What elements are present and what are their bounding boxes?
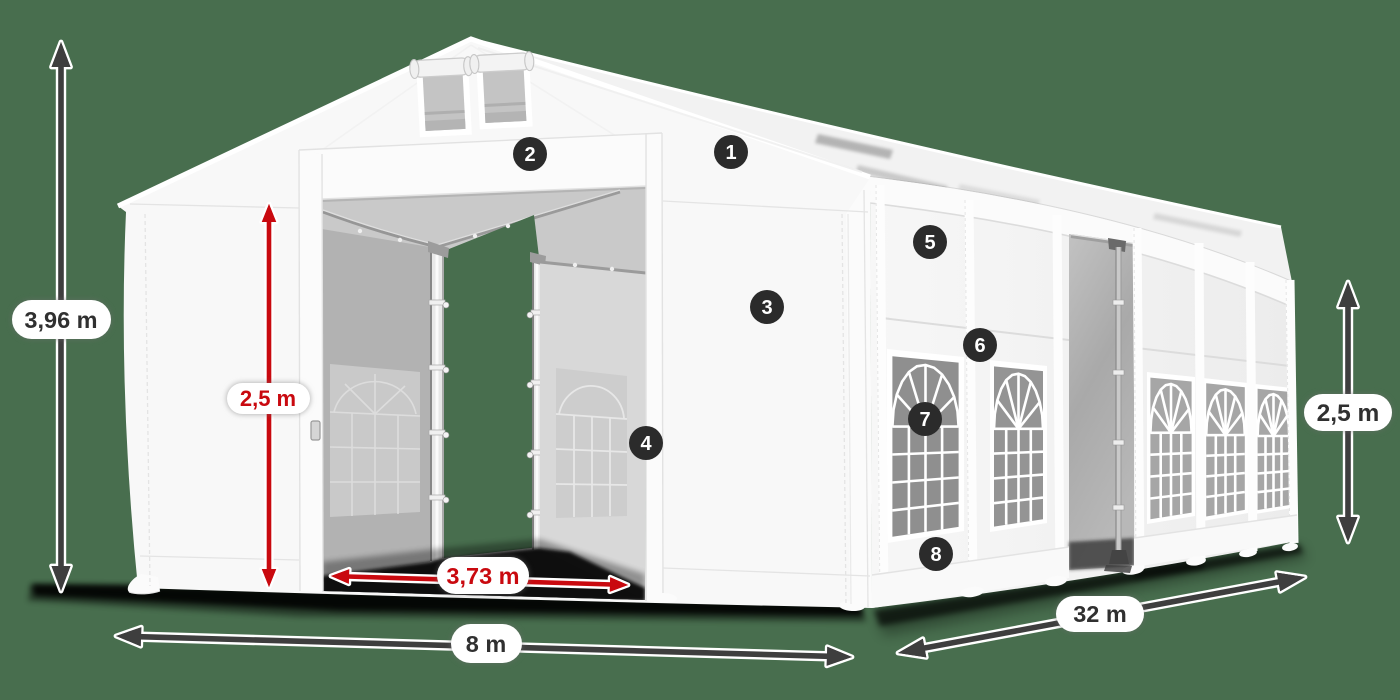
svg-text:6: 6	[974, 335, 985, 357]
svg-text:3: 3	[761, 297, 772, 319]
svg-text:2,5 m: 2,5 m	[240, 386, 296, 411]
svg-text:5: 5	[924, 232, 935, 254]
svg-text:7: 7	[919, 409, 930, 431]
svg-text:3,73 m: 3,73 m	[446, 563, 519, 589]
svg-text:8 m: 8 m	[466, 631, 507, 657]
svg-text:2: 2	[524, 144, 535, 166]
svg-text:1: 1	[725, 142, 736, 164]
svg-text:3,96 m: 3,96 m	[24, 307, 97, 333]
svg-text:8: 8	[930, 544, 941, 566]
svg-text:32 m: 32 m	[1073, 601, 1127, 627]
svg-text:2,5 m: 2,5 m	[1317, 400, 1380, 427]
svg-text:4: 4	[640, 433, 652, 455]
